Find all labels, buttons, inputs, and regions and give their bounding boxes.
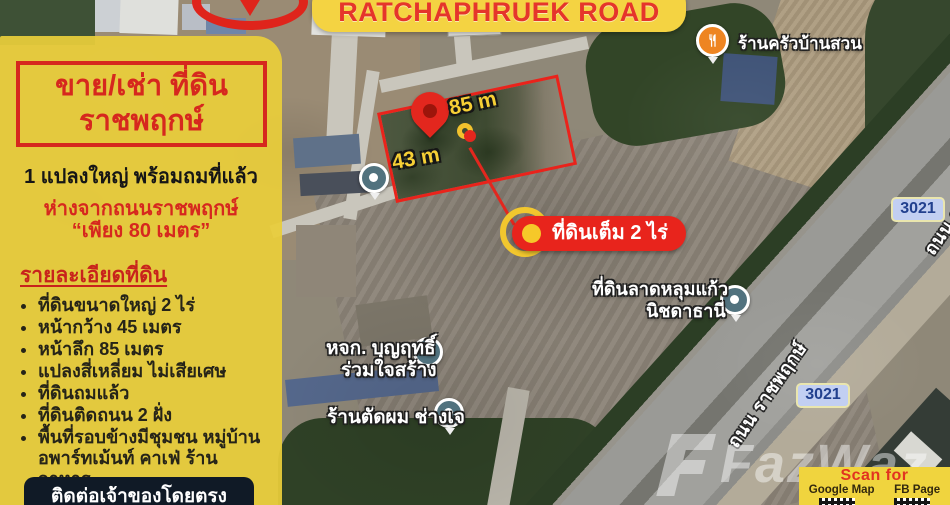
panel-title-box: ขาย/เช่า ที่ดิน ราชพฤกษ์ — [16, 61, 267, 147]
panel-title-line1: ขาย/เช่า ที่ดิน — [22, 69, 261, 104]
road-name-banner: RATCHAPHRUEK ROAD — [312, 0, 686, 32]
info-panel: ขาย/เช่า ที่ดิน ราชพฤกษ์ 1 แปลงใหญ่ พร้อ… — [0, 36, 282, 505]
poi-marker-icon — [359, 163, 389, 193]
route-shield: 3021 — [796, 383, 850, 408]
route-shield: 3021 — [891, 197, 945, 222]
panel-highlight-line1: ห่างจากถนนราชพฤกษ์ — [0, 198, 282, 220]
scan-for-box: Scan for Google Map FB Page — [799, 467, 950, 505]
poi-label-restaurant: ร้านครัวบ้านสวน — [738, 30, 862, 57]
qr-label-google-map: Google Map — [809, 484, 875, 497]
qr-code-google-map — [819, 498, 855, 505]
poi-label-barber: ร้านตัดผม ช่างเจ — [327, 402, 465, 432]
details-header: รายละเอียดที่ดิน — [20, 259, 282, 292]
qr-label-fb-page: FB Page — [894, 484, 940, 497]
contact-banner: ติดต่อเจ้าของโดยตรง — [24, 477, 254, 505]
panel-highlight: ห่างจากถนนราชพฤกษ์ “เพียง 80 เมตร” — [0, 198, 282, 242]
building-roof — [119, 0, 178, 35]
restaurant-marker-icon — [696, 24, 729, 57]
detail-item: แปลงสี่เหลี่ยม ไม่เสียเศษ — [38, 361, 268, 382]
building-roof — [296, 225, 356, 297]
building-roof — [293, 134, 361, 169]
detail-item: ที่ดินติดถนน 2 ฝั่ง — [38, 405, 268, 426]
detail-item: ที่ดินขนาดใหญ่ 2 ไร่ — [38, 295, 268, 316]
detail-item: หน้ากว้าง 45 เมตร — [38, 317, 268, 338]
callout-label: ที่ดินเต็ม 2 ไร่ — [552, 222, 668, 244]
building-roof — [720, 53, 777, 105]
panel-highlight-line2: “เพียง 80 เมตร” — [0, 220, 282, 242]
listing-map-screenshot: 85 m 43 m ที่ดินเต็ม 2 ไร่ ร้านครัวบ้านส… — [0, 0, 950, 505]
scan-title: Scan for — [799, 468, 950, 484]
panel-title-line2: ราชพฤกษ์ — [22, 104, 261, 139]
detail-item: หน้าลึก 85 เมตร — [38, 339, 268, 360]
qr-code-fb-page — [894, 498, 930, 505]
fork-knife-icon — [705, 33, 720, 48]
plot-ring-marker-icon — [457, 123, 473, 139]
poi-label-nichada-line2: นิชดาธานี — [646, 296, 726, 325]
poi-label-company-line2: ร่วมใจสร้าง — [341, 355, 437, 385]
panel-subtitle: 1 แปลงใหญ่ พร้อมถมที่แล้ว — [0, 160, 282, 192]
plot-area-callout: ที่ดินเต็ม 2 ไร่ — [512, 216, 686, 251]
fazwaz-logo-icon — [662, 428, 720, 500]
location-pin-tip-icon — [234, 0, 266, 16]
callout-dot-icon — [522, 224, 541, 243]
banner-text: RATCHAPHRUEK ROAD — [338, 0, 660, 28]
detail-item: ที่ดินถมแล้ว — [38, 383, 268, 404]
details-list: ที่ดินขนาดใหญ่ 2 ไร่ หน้ากว้าง 45 เมตร ห… — [0, 295, 268, 490]
